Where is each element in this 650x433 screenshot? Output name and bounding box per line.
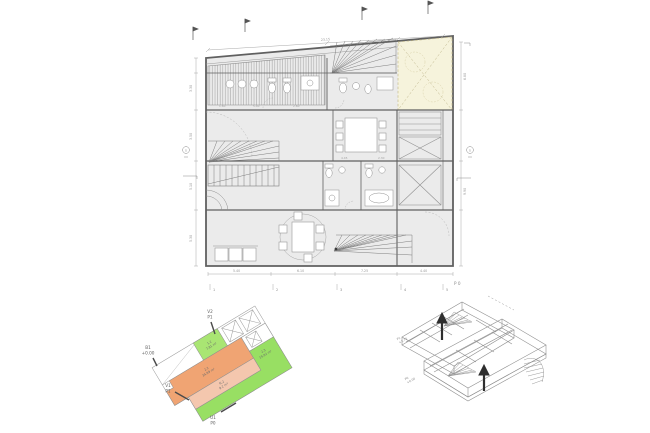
dim-inner: 2.30 xyxy=(378,156,385,160)
axonometric-view: P1 +2.70 P0 +0.00 xyxy=(396,290,566,433)
dim-left: 3.30 xyxy=(189,85,193,92)
dim-bottom: 5.40 xyxy=(233,269,240,273)
level-label: P 0 xyxy=(454,281,461,286)
dim-right: 6.80 xyxy=(463,73,467,80)
axon-dashed-guide xyxy=(488,296,514,310)
floor-plan-p0: 23.15 3.30 3.50 5.10 5.30 6.80 9.90 5.40… xyxy=(175,0,475,296)
dim-left: 5.30 xyxy=(189,235,193,242)
dim-right: 9.90 xyxy=(463,188,467,195)
dim-bottom: 6.10 xyxy=(297,269,304,273)
dim-bottom: 4.40 xyxy=(420,269,427,273)
callout-level: +0.00 xyxy=(142,351,155,356)
dim-bottom: 7.25 xyxy=(361,269,368,273)
callout-level: P1 xyxy=(207,315,213,320)
key-plan-diagram: 1.2 7.81 m² 2.2 34.99 m² N.2 9.2 m² 2.3 … xyxy=(141,300,301,432)
callout-ref: B1 xyxy=(145,345,151,350)
dim-left: 5.10 xyxy=(189,183,193,190)
dim-inner: 2.60 xyxy=(293,104,300,108)
section-letter: S xyxy=(185,148,187,152)
axis-tick: 1 xyxy=(213,288,215,292)
dim-inner: 4.45 xyxy=(341,156,348,160)
dim-top: 23.15 xyxy=(321,37,330,42)
dim-inner: 5.40 xyxy=(253,104,260,108)
callout-level: P0 xyxy=(210,421,216,426)
survey-flag-icon xyxy=(193,1,433,40)
architectural-sheet: 23.15 3.30 3.50 5.10 5.30 6.80 9.90 5.40… xyxy=(0,0,650,433)
dim-inner: 1.60 xyxy=(219,104,226,108)
sofa-row xyxy=(213,246,258,261)
dim-left: 3.50 xyxy=(189,133,193,140)
section-letter: S xyxy=(469,148,471,152)
axis-tick: 2 xyxy=(276,288,278,292)
axon-stair-hatch xyxy=(444,312,544,384)
void-cream-area xyxy=(398,37,452,110)
callout-ref: V2 xyxy=(207,309,213,314)
axis-tick: 3 xyxy=(340,288,342,292)
callout-ref: V1 xyxy=(165,383,171,388)
callout-ref: U1 xyxy=(210,415,216,420)
callout-level: P1 xyxy=(165,389,171,394)
